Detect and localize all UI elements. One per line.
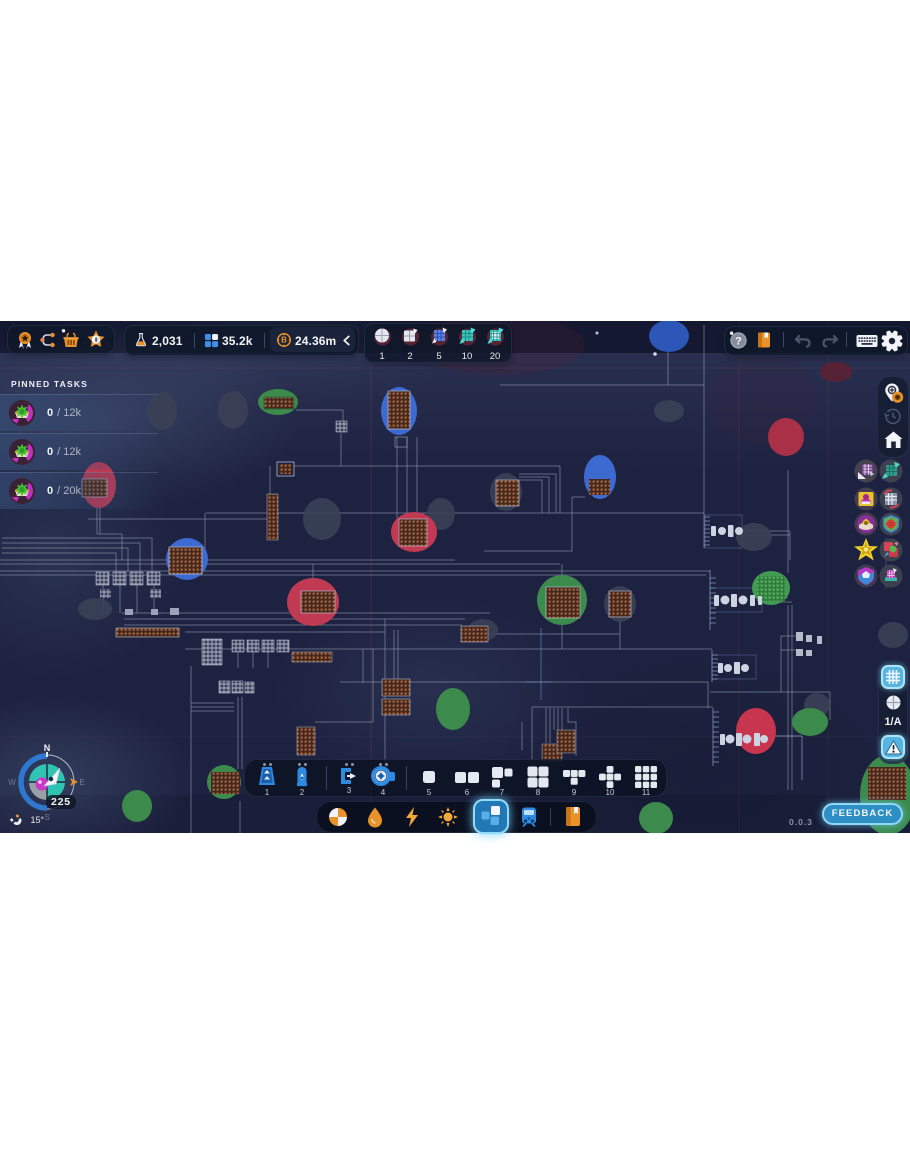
svg-text:E: E (79, 778, 84, 787)
svg-text:?: ? (735, 336, 742, 348)
svg-text:N: N (44, 743, 51, 753)
svg-text:B: B (281, 336, 287, 345)
svg-text:W: W (8, 778, 16, 787)
